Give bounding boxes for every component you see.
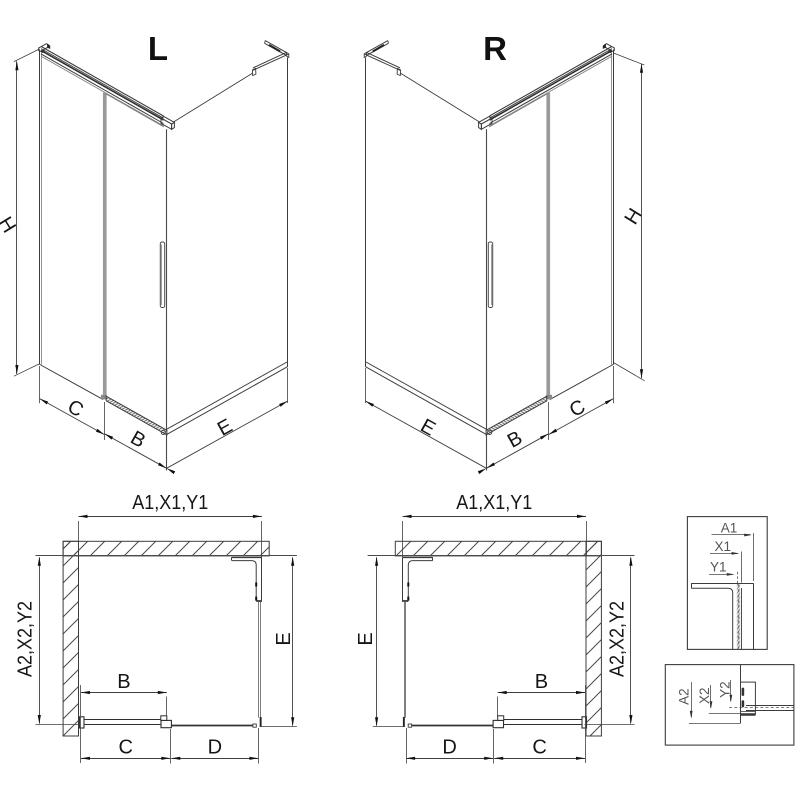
svg-text:B: B bbox=[535, 671, 548, 693]
svg-text:A1,X1,Y1: A1,X1,Y1 bbox=[456, 492, 532, 514]
svg-text:C: C bbox=[118, 737, 132, 759]
svg-text:L: L bbox=[148, 30, 168, 67]
svg-text:A1: A1 bbox=[721, 521, 738, 536]
svg-text:B: B bbox=[117, 671, 130, 693]
svg-text:A2: A2 bbox=[676, 688, 691, 705]
svg-text:A2,X2,Y2: A2,X2,Y2 bbox=[15, 601, 37, 677]
svg-text:D: D bbox=[208, 737, 222, 759]
svg-text:X1: X1 bbox=[714, 539, 731, 554]
svg-text:R: R bbox=[483, 30, 507, 67]
svg-text:A1,X1,Y1: A1,X1,Y1 bbox=[132, 492, 208, 514]
svg-text:Y1: Y1 bbox=[710, 560, 727, 575]
svg-text:E: E bbox=[273, 632, 295, 645]
svg-text:C: C bbox=[532, 737, 546, 759]
svg-text:E: E bbox=[355, 632, 377, 645]
svg-text:D: D bbox=[442, 737, 456, 759]
svg-text:A2,X2,Y2: A2,X2,Y2 bbox=[607, 601, 629, 677]
